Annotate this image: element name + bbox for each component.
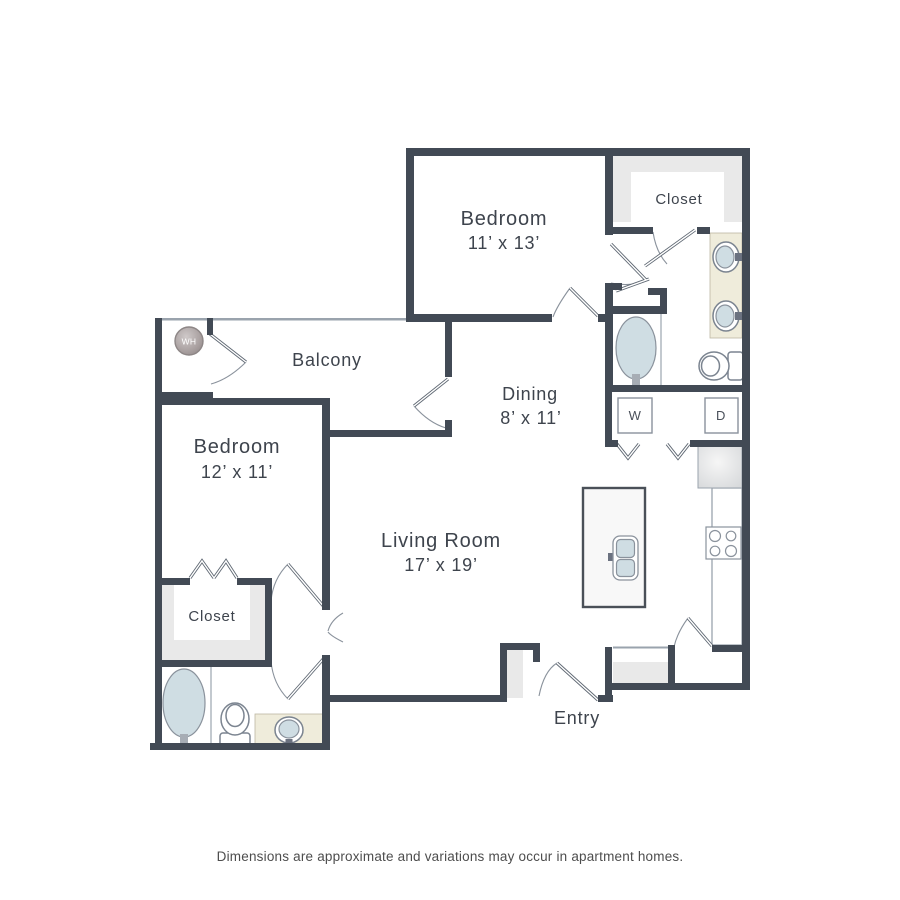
dining-dims: 8’ x 11’ — [500, 408, 561, 428]
toilet-lower-icon — [220, 703, 250, 747]
washer-bifold — [617, 444, 639, 458]
pantry-shelf — [613, 662, 668, 683]
living-room-dims: 17’ x 19’ — [404, 555, 478, 575]
bedroom2-label: Bedroom — [194, 436, 281, 458]
pantry-opening-line — [613, 647, 668, 649]
toilet-upper-icon — [699, 352, 743, 380]
entry-label: Entry — [554, 708, 600, 728]
bedroom1-dims: 11’ x 13’ — [468, 233, 540, 253]
closet-upper-label: Closet — [655, 191, 702, 208]
closet-shelving-upper — [613, 156, 742, 222]
closet-upper-door — [645, 230, 695, 266]
bathtub-upper-icon — [616, 317, 656, 388]
dining-label: Dining — [502, 384, 558, 404]
water-heater-label: WH — [182, 337, 197, 347]
balcony-edge-line — [162, 318, 406, 321]
disclaimer-text: Dimensions are approximate and variation… — [217, 849, 684, 864]
dryer-bifold — [667, 444, 689, 458]
floorplan-canvas: Bedroom 11’ x 13’ Closet Balcony Bedroom… — [0, 0, 900, 900]
living-room-label: Living Room — [381, 530, 501, 552]
tub-divider-upper — [660, 314, 662, 388]
stove-icon — [706, 527, 741, 559]
entry-closet-shelf — [507, 650, 523, 698]
closet-lower-bifold-b — [214, 561, 237, 578]
washer-label: W — [629, 408, 642, 423]
bedroom2-door-lower — [288, 657, 325, 699]
closet-lower-bifold-a — [190, 561, 214, 578]
balcony-label: Balcony — [292, 350, 362, 370]
kitchen-counter — [712, 488, 742, 645]
bedroom1-door — [570, 288, 598, 316]
door-swing-arcs — [211, 232, 688, 699]
bath-upper-door-a — [611, 244, 646, 280]
bedroom2-dims: 12’ x 11’ — [201, 462, 273, 482]
kitchen-island — [583, 488, 645, 607]
entry-door — [557, 663, 598, 700]
balcony-door — [414, 379, 448, 406]
floorplan-page: Bedroom 11’ x 13’ Closet Balcony Bedroom… — [0, 0, 900, 900]
bathtub-lower-icon — [163, 669, 205, 747]
fridge-icon — [698, 445, 742, 488]
bath-divider-lower — [210, 667, 212, 743]
dryer-label: D — [716, 408, 726, 423]
water-heater-door — [210, 334, 246, 362]
closet-lower-label: Closet — [188, 608, 235, 625]
pantry-door — [688, 618, 712, 646]
bedroom1-label: Bedroom — [461, 208, 548, 230]
bedroom2-door-upper — [288, 564, 325, 608]
